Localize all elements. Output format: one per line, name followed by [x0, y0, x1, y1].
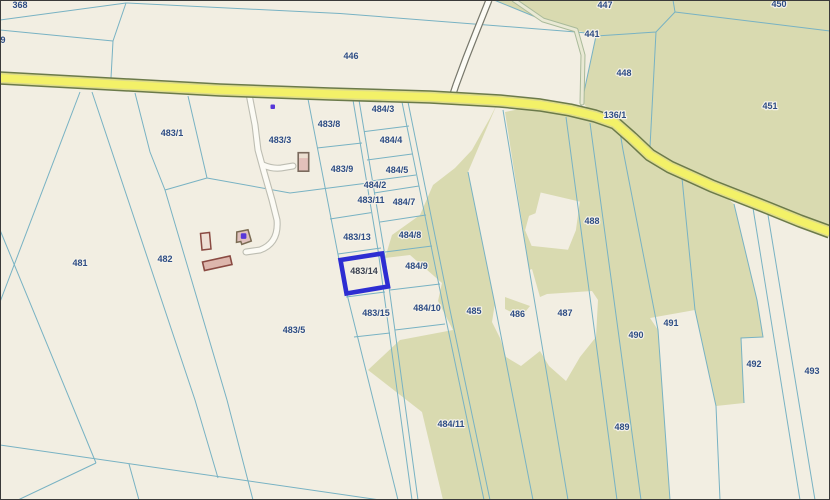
- svg-text:481: 481: [72, 258, 87, 268]
- svg-text:450: 450: [771, 0, 786, 9]
- svg-text:492: 492: [746, 359, 761, 369]
- svg-text:488: 488: [584, 216, 599, 226]
- svg-text:483/8: 483/8: [318, 119, 341, 129]
- svg-text:446: 446: [343, 51, 358, 61]
- svg-text:484/8: 484/8: [399, 230, 422, 240]
- svg-text:484/2: 484/2: [364, 180, 387, 190]
- svg-text:484/3: 484/3: [372, 104, 395, 114]
- svg-text:490: 490: [628, 330, 643, 340]
- svg-text:485: 485: [466, 306, 481, 316]
- svg-text:136/1: 136/1: [604, 110, 627, 120]
- svg-text:483/1: 483/1: [161, 128, 184, 138]
- svg-text:483/11: 483/11: [357, 195, 384, 205]
- svg-text:489: 489: [614, 422, 629, 432]
- svg-text:483/5: 483/5: [283, 325, 306, 335]
- svg-text:491: 491: [663, 318, 678, 328]
- svg-text:484/5: 484/5: [386, 165, 409, 175]
- svg-text:483/14: 483/14: [350, 266, 378, 276]
- svg-text:482: 482: [157, 254, 172, 264]
- svg-text:484/10: 484/10: [413, 303, 441, 313]
- svg-text:484/7: 484/7: [393, 197, 416, 207]
- svg-text:441: 441: [584, 29, 599, 39]
- svg-text:493: 493: [804, 366, 819, 376]
- svg-text:483/3: 483/3: [269, 135, 292, 145]
- svg-text:368: 368: [12, 0, 27, 10]
- svg-text:484/11: 484/11: [437, 419, 464, 429]
- svg-text:484/4: 484/4: [380, 135, 403, 145]
- svg-text:448: 448: [616, 68, 631, 78]
- svg-text:486: 486: [510, 309, 525, 319]
- svg-text:483/9: 483/9: [331, 164, 354, 174]
- svg-text:451: 451: [762, 101, 777, 111]
- svg-text:483/13: 483/13: [343, 232, 371, 242]
- svg-text:447: 447: [597, 0, 612, 10]
- svg-text:483/15: 483/15: [362, 308, 390, 318]
- svg-text:484/9: 484/9: [405, 261, 428, 271]
- svg-text:487: 487: [557, 308, 572, 318]
